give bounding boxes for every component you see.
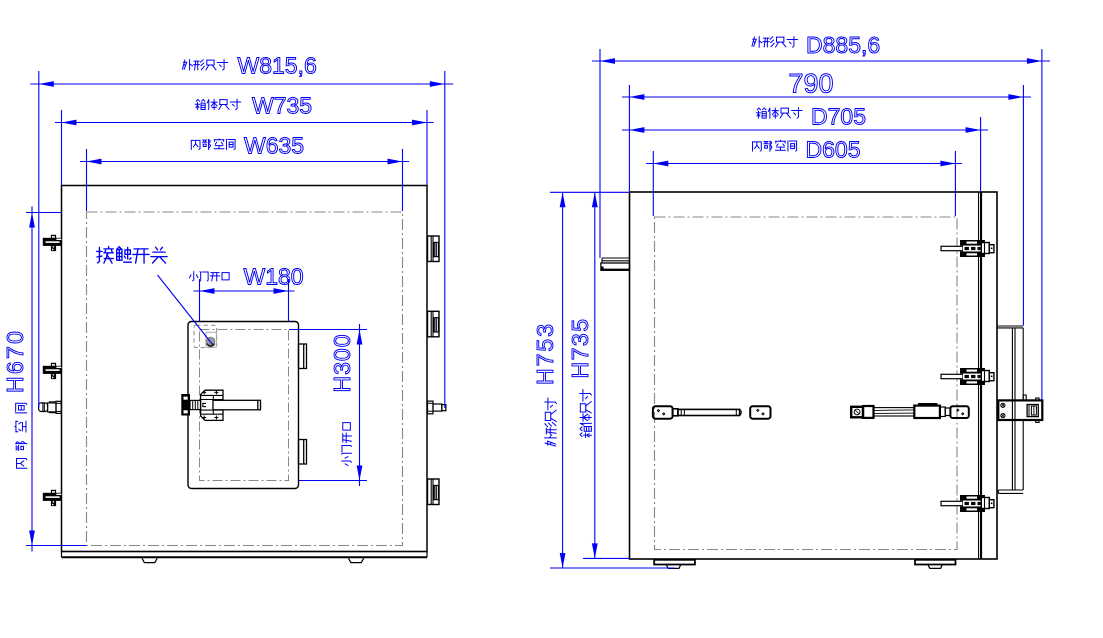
svg-text:790: 790 (789, 69, 834, 99)
svg-text:H300: H300 (329, 334, 355, 393)
svg-text:H753: H753 (532, 322, 558, 385)
svg-text:W735: W735 (252, 93, 312, 119)
svg-text:D705: D705 (811, 104, 866, 130)
svg-text:D605: D605 (806, 137, 861, 163)
svg-text:W180: W180 (244, 264, 304, 290)
svg-text:W635: W635 (244, 133, 304, 159)
svg-text:D885,6: D885,6 (806, 32, 880, 58)
svg-text:H670: H670 (2, 329, 28, 393)
svg-text:H735: H735 (567, 318, 593, 379)
svg-text:W815,6: W815,6 (238, 53, 317, 79)
